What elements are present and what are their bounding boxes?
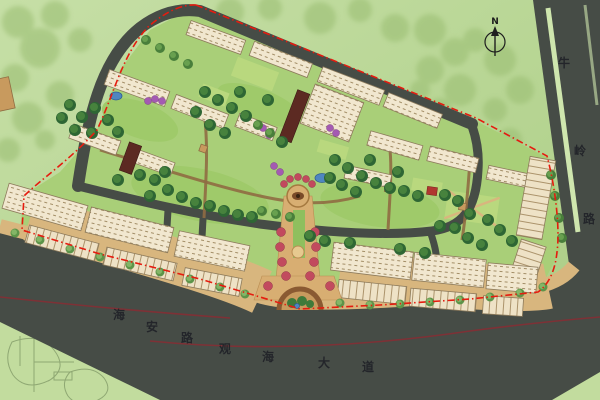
road-char: 海	[262, 349, 274, 364]
road-char: 海	[113, 307, 125, 322]
road-char: 路	[583, 211, 596, 226]
entrance-arch	[279, 289, 321, 310]
road-char: 安	[146, 319, 158, 334]
road-char: 观	[219, 342, 231, 356]
north-label: N	[491, 17, 499, 27]
master-plan-screenshot: N 海 安 路 观 海 大 道 牛 岭 路	[0, 0, 600, 400]
site-plan-drawing: N 海 安 路 观 海 大 道 牛 岭 路	[0, 0, 600, 400]
road-char: 岭	[574, 143, 586, 158]
road-char: 路	[181, 330, 194, 345]
road-char: 道	[362, 359, 374, 374]
red-pavilion	[426, 186, 437, 195]
road-char: 牛	[558, 55, 570, 70]
road-char: 大	[318, 355, 330, 370]
